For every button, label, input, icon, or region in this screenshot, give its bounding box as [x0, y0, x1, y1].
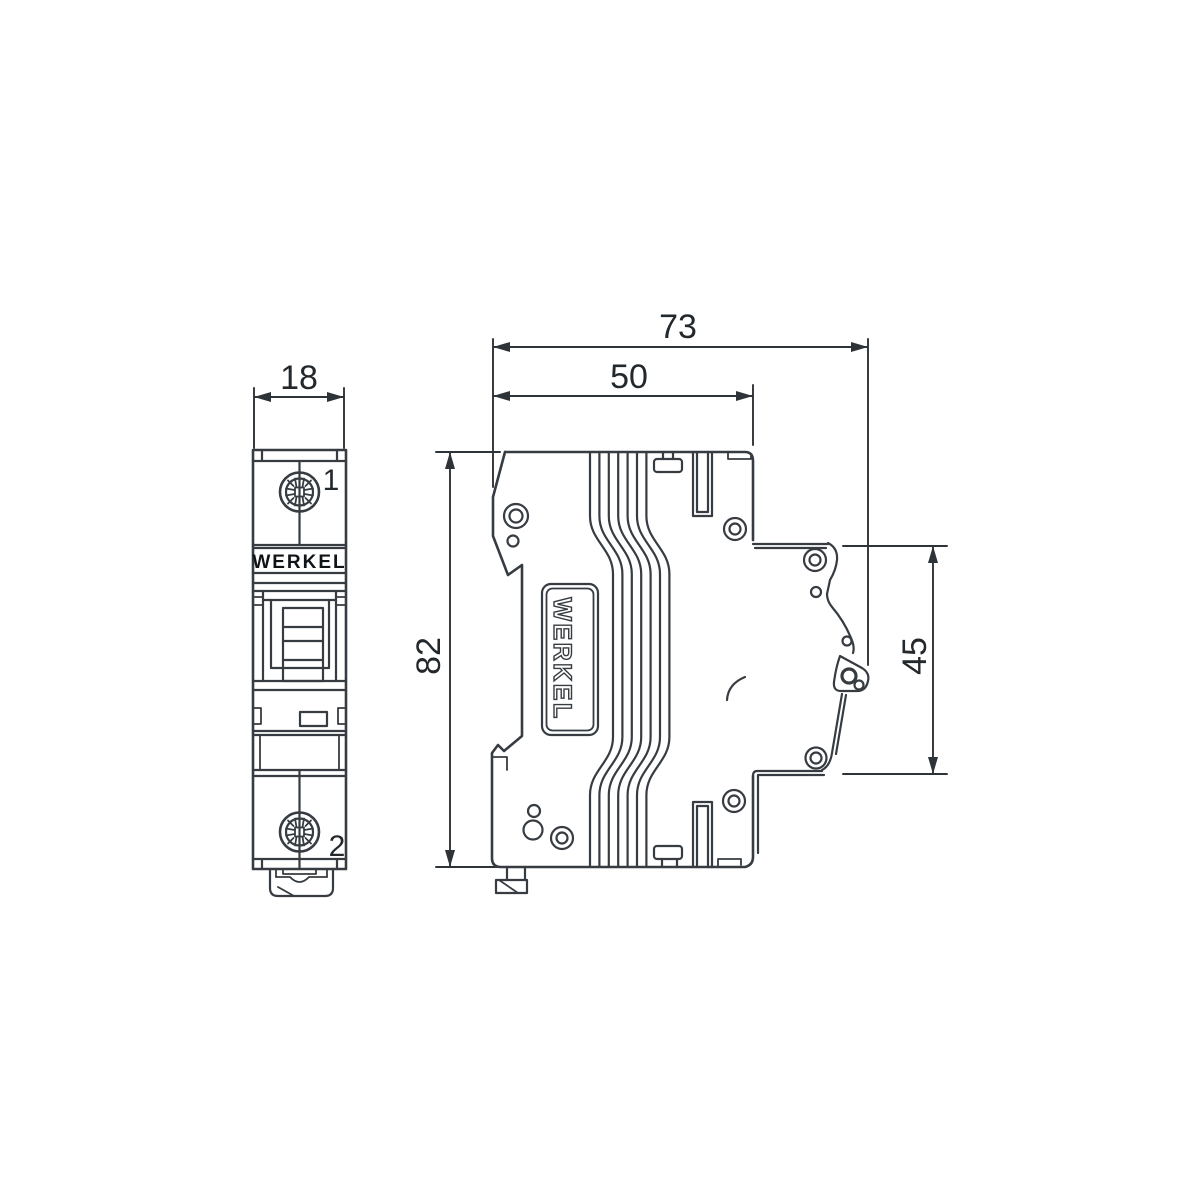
- dim-45-label: 45: [896, 637, 934, 675]
- side-view: 73 50 82 45: [410, 308, 947, 893]
- dim-height-82: 82: [410, 452, 500, 867]
- top-edge-features: [654, 452, 751, 516]
- dim-din-45: 45: [843, 546, 947, 774]
- breaker-dimension-drawing: 18 1 WERKEL: [0, 0, 1200, 1200]
- dim-73-label: 73: [659, 308, 697, 346]
- dim-depth-50: 50: [493, 358, 753, 445]
- brand-band-front: WERKEL: [252, 548, 346, 591]
- indicator-section: [253, 708, 346, 776]
- din-clip-front: [270, 869, 333, 896]
- terminal-label-1: 1: [323, 464, 340, 497]
- bottom-edge-features: [654, 802, 741, 867]
- dim-18-label: 18: [280, 359, 318, 397]
- brand-plate-side: WERKEL: [542, 584, 598, 735]
- brand-side-label: WERKEL: [548, 597, 576, 720]
- dim-50-label: 50: [610, 358, 648, 396]
- din-slider: [496, 867, 527, 893]
- case-seam-arc: [727, 677, 745, 700]
- toggle-switch: [253, 591, 346, 690]
- side-ribs: [590, 452, 669, 866]
- brand-front-label: WERKEL: [252, 552, 346, 573]
- front-view: 18 1 WERKEL: [252, 359, 346, 896]
- dim-width-18: 18: [254, 359, 344, 448]
- dim-82-label: 82: [410, 637, 448, 675]
- indicator-window: [300, 712, 327, 726]
- din-latch: [806, 543, 869, 770]
- drawing-canvas: 18 1 WERKEL: [0, 0, 1200, 1200]
